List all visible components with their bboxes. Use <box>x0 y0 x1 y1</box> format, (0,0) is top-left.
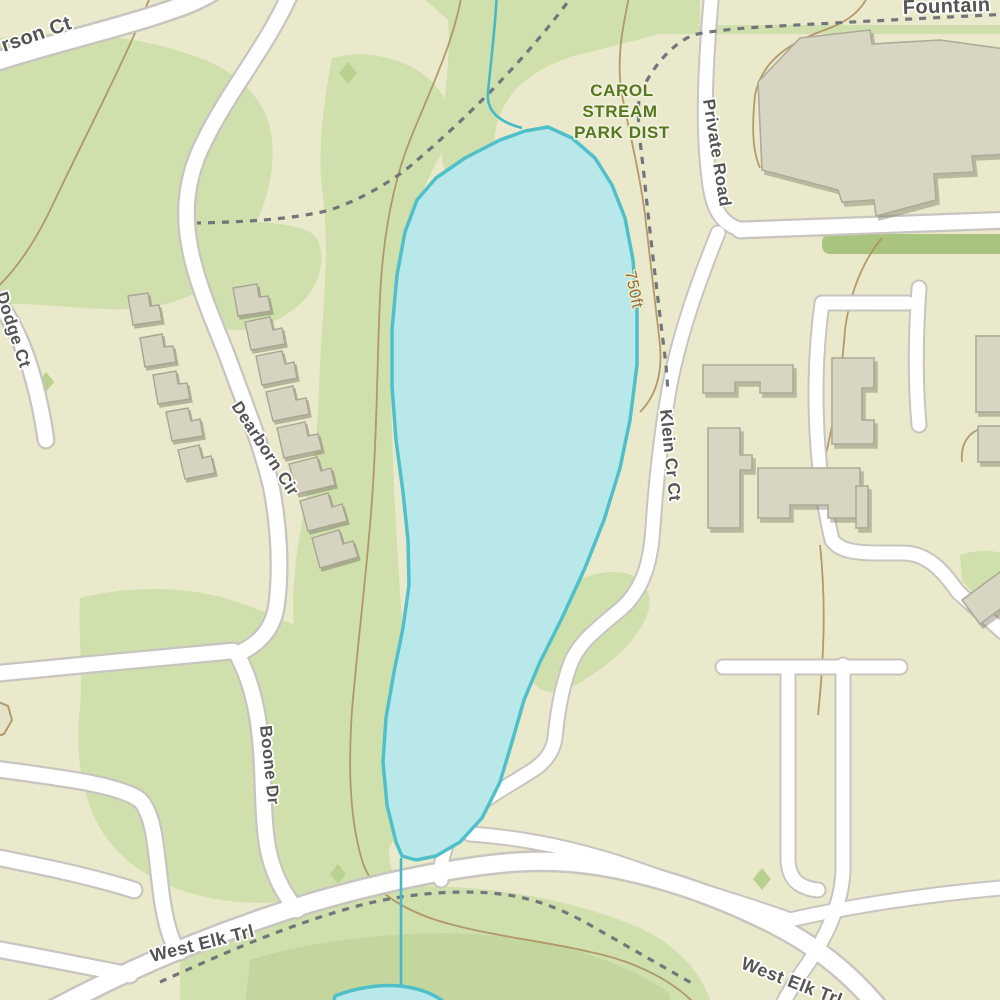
label-park-district-1: CAROL <box>590 81 653 100</box>
label-fountain: Fountain <box>902 0 990 19</box>
label-park-district-3: PARK DIST <box>574 123 670 142</box>
road-grid-2 <box>0 856 134 890</box>
buildings <box>703 30 1000 624</box>
road-vertical-1 <box>788 670 818 890</box>
apartment-1 <box>703 365 793 393</box>
label-park-district-2: STREAM <box>582 102 657 121</box>
map-viewport[interactable]: rson Ct Fountain Private Road CAROL STRE… <box>0 0 1000 1000</box>
apartment-3 <box>758 468 860 518</box>
lake <box>383 127 637 860</box>
apartment-4 <box>832 358 874 444</box>
apartment-2 <box>708 428 752 528</box>
apartment-7 <box>856 486 868 528</box>
hedge-row <box>822 234 1000 254</box>
gazebo-structure <box>0 700 12 738</box>
apartment-5 <box>976 336 1000 412</box>
map-canvas[interactable]: rson Ct Fountain Private Road CAROL STRE… <box>0 0 1000 1000</box>
road-top-east <box>740 220 1000 230</box>
building-large-commercial <box>758 30 1000 216</box>
road-loop-stub <box>916 288 919 425</box>
apartment-6 <box>978 426 1000 462</box>
